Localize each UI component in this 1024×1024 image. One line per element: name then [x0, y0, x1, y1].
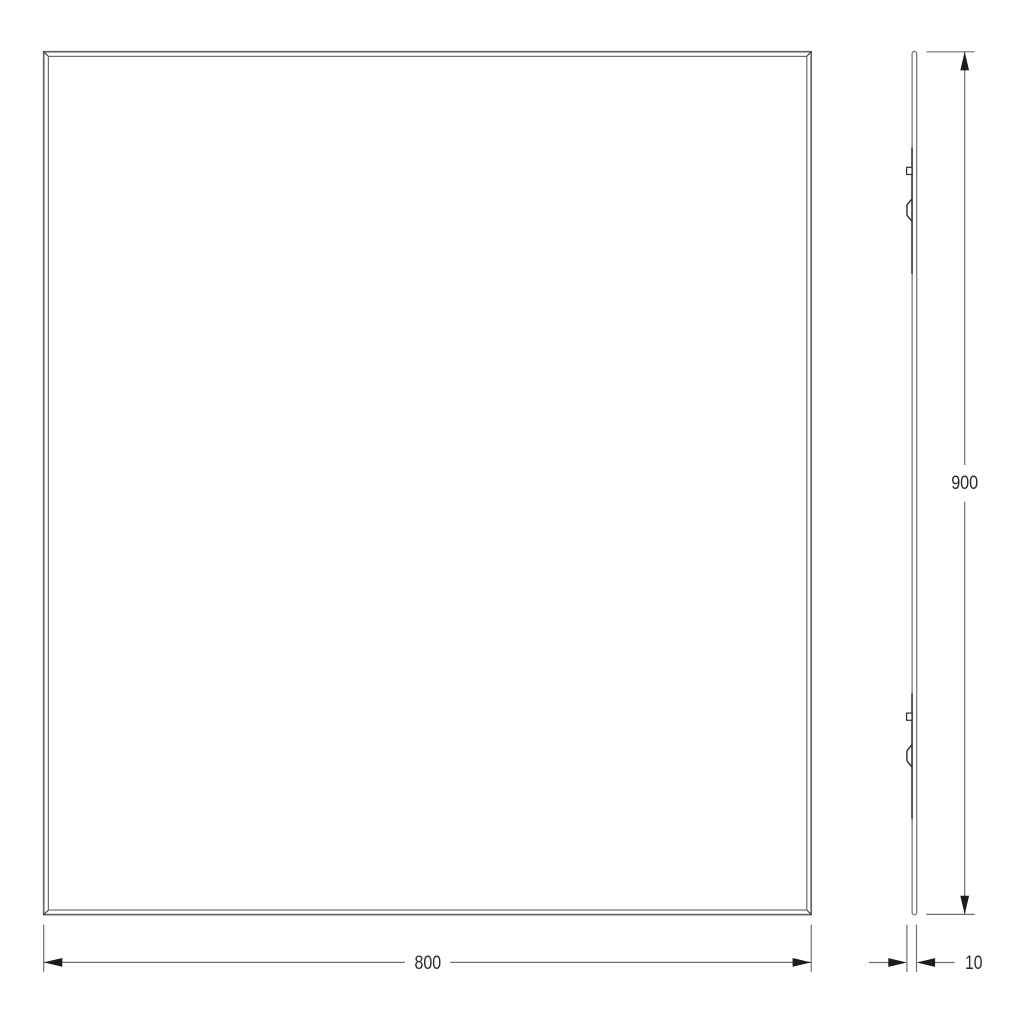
svg-text:800: 800	[415, 952, 442, 974]
svg-text:900: 900	[951, 472, 978, 494]
svg-text:10: 10	[965, 952, 983, 974]
